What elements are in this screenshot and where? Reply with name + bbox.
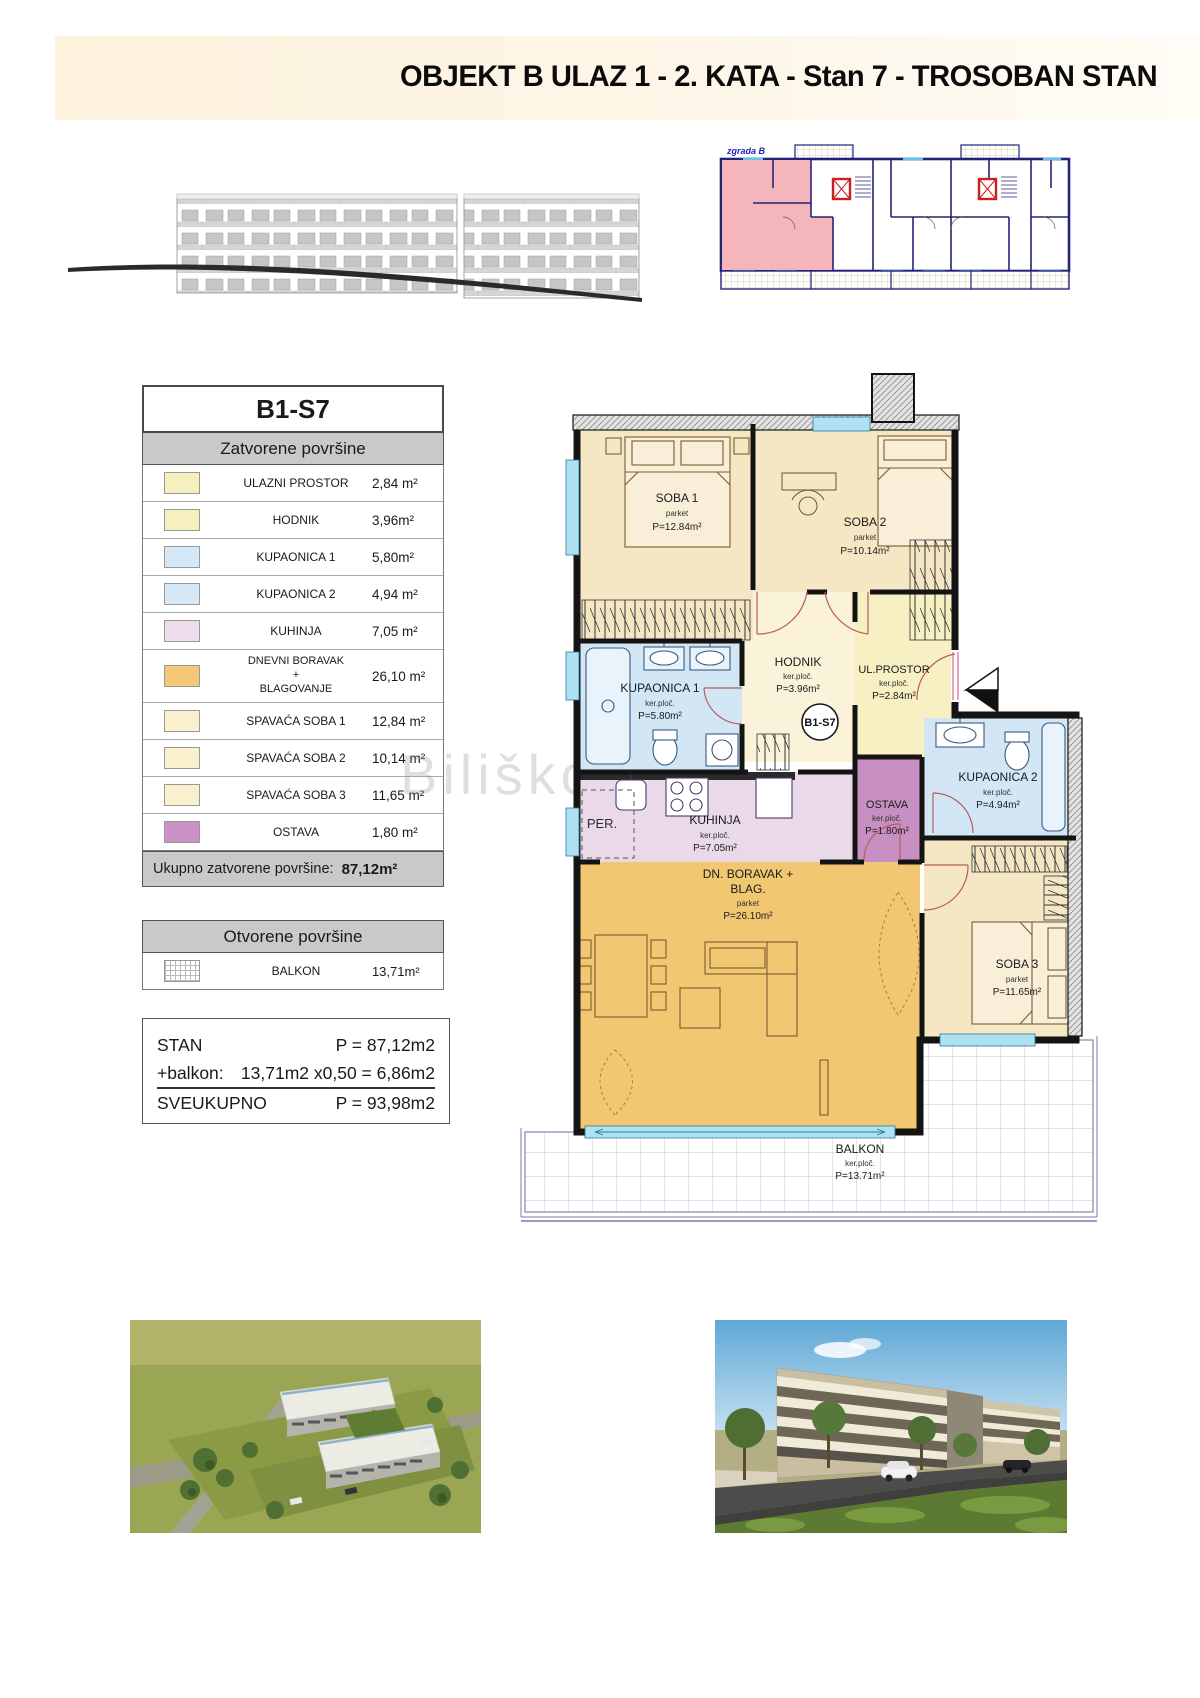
room-area: 5,80m² bbox=[370, 550, 443, 565]
table-row: OSTAVA 1,80 m² bbox=[143, 813, 443, 850]
unit-code-title: B1-S7 bbox=[142, 385, 444, 433]
room-area: 7,05 m² bbox=[370, 624, 443, 639]
room-color-swatch bbox=[164, 784, 200, 806]
label-soba1: SOBA 1 bbox=[656, 491, 699, 505]
wardrobe-soba3-top bbox=[972, 846, 1067, 872]
svg-text:P=10.14m²: P=10.14m² bbox=[840, 546, 890, 557]
room-color-swatch bbox=[164, 665, 200, 687]
table-row: SPAVAĆA SOBA 1 12,84 m² bbox=[143, 702, 443, 739]
label-soba2: SOBA 2 bbox=[844, 515, 887, 529]
room-name: SPAVAĆA SOBA 1 bbox=[222, 714, 370, 729]
room-name: KUPAONICA 2 bbox=[222, 587, 370, 602]
summary-label: +balkon: bbox=[157, 1059, 224, 1087]
building-label: zgrada B bbox=[726, 146, 766, 156]
label-boravak: DN. BORAVAK + bbox=[703, 867, 794, 881]
room-area: 3,96m² bbox=[370, 513, 443, 528]
total-label: Ukupno zatvorene površine: bbox=[143, 861, 334, 877]
room-area: 13,71m² bbox=[370, 964, 443, 979]
room-name: BALKON bbox=[222, 964, 370, 979]
label-kupaonica2: KUPAONICA 2 bbox=[958, 770, 1037, 784]
unit-badge: B1-S7 bbox=[804, 717, 835, 729]
label-soba3: SOBA 3 bbox=[996, 957, 1039, 971]
room-name: KUPAONICA 1 bbox=[222, 550, 370, 565]
svg-text:P=7.05m²: P=7.05m² bbox=[693, 843, 737, 854]
room-color-swatch bbox=[164, 546, 200, 568]
label-ostava: OSTAVA bbox=[866, 799, 909, 811]
render-street-view bbox=[715, 1320, 1067, 1533]
svg-text:P=2.84m²: P=2.84m² bbox=[872, 691, 916, 702]
svg-text:parket: parket bbox=[854, 533, 877, 542]
wardrobe-soba1 bbox=[582, 600, 750, 640]
svg-text:P=4.94m²: P=4.94m² bbox=[976, 800, 1020, 811]
room-name: SPAVAĆA SOBA 3 bbox=[222, 788, 370, 803]
building-elevation-drawing bbox=[64, 158, 642, 306]
room-area: 26,10 m² bbox=[370, 669, 443, 684]
table-row: KUPAONICA 1 5,80m² bbox=[143, 538, 443, 575]
summary-label: STAN bbox=[157, 1031, 202, 1059]
table-row: ULAZNI PROSTOR 2,84 m² bbox=[143, 465, 443, 501]
svg-text:ker.ploč.: ker.ploč. bbox=[700, 831, 730, 840]
room-name: HODNIK bbox=[222, 513, 370, 528]
unit-area-table: B1-S7 Zatvorene površine ULAZNI PROSTOR … bbox=[142, 385, 444, 887]
label-kupaonica1: KUPAONICA 1 bbox=[620, 681, 699, 695]
svg-text:P=13.71m²: P=13.71m² bbox=[835, 1171, 885, 1182]
balcony-strip bbox=[721, 271, 1069, 289]
room-area: 12,84 m² bbox=[370, 714, 443, 729]
table-row: KUHINJA 7,05 m² bbox=[143, 612, 443, 649]
summary-line-total: SVEUKUPNO P = 93,98m2 bbox=[157, 1089, 435, 1117]
area-summary-box: STAN P = 87,12m2 +balkon: 13,71m2 x0,50 … bbox=[142, 1018, 450, 1124]
svg-text:ker.ploč.: ker.ploč. bbox=[645, 699, 675, 708]
label-balkon: BALKON bbox=[836, 1142, 885, 1156]
room-color-swatch bbox=[164, 710, 200, 732]
table-row: BALKON 13,71m² bbox=[143, 953, 443, 989]
vent-shaft bbox=[872, 374, 914, 422]
apartment-floorplan: SOBA 1 parket P=12.84m² SOBA 2 parket P=… bbox=[520, 360, 1100, 1228]
svg-text:P=12.84m²: P=12.84m² bbox=[652, 522, 702, 533]
open-areas-header: Otvorene površine bbox=[142, 920, 444, 953]
header-banner: OBJEKT B ULAZ 1 - 2. KATA - Stan 7 - TRO… bbox=[55, 36, 1200, 120]
room-name: DNEVNI BORAVAK + BLAGOVANJE bbox=[222, 655, 370, 696]
table-row: KUPAONICA 2 4,94 m² bbox=[143, 575, 443, 612]
room-name: OSTAVA bbox=[222, 825, 370, 840]
room-area: 4,94 m² bbox=[370, 587, 443, 602]
svg-text:ker.ploč.: ker.ploč. bbox=[879, 679, 909, 688]
table-row: SPAVAĆA SOBA 3 11,65 m² bbox=[143, 776, 443, 813]
page-title: OBJEKT B ULAZ 1 - 2. KATA - Stan 7 - TRO… bbox=[400, 60, 1157, 94]
room-area: 2,84 m² bbox=[370, 476, 443, 491]
svg-text:ker.ploč.: ker.ploč. bbox=[872, 814, 902, 823]
summary-line-balkon: +balkon: 13,71m2 x0,50 = 6,86m2 bbox=[157, 1059, 435, 1089]
room-name: ULAZNI PROSTOR bbox=[222, 476, 370, 491]
summary-value: P = 93,98m2 bbox=[336, 1089, 435, 1117]
svg-text:P=5.80m²: P=5.80m² bbox=[638, 711, 682, 722]
label-washer: PER. bbox=[587, 816, 617, 831]
svg-text:ker.ploč.: ker.ploč. bbox=[983, 788, 1013, 797]
label-hodnik: HODNIK bbox=[775, 655, 822, 669]
svg-text:ker.ploč.: ker.ploč. bbox=[845, 1159, 875, 1168]
floor-overview-plan: zgrada B bbox=[713, 143, 1078, 305]
hall-closet bbox=[757, 734, 789, 770]
label-ulprostor: UL.PROSTOR bbox=[858, 664, 929, 676]
room-color-swatch bbox=[164, 821, 200, 843]
svg-text:parket: parket bbox=[1006, 975, 1029, 984]
room-name: SPAVAĆA SOBA 2 bbox=[222, 751, 370, 766]
summary-value: 13,71m2 x0,50 = 6,86m2 bbox=[241, 1059, 435, 1087]
summary-line-stan: STAN P = 87,12m2 bbox=[157, 1031, 435, 1059]
wardrobe-soba3-side bbox=[1044, 876, 1068, 920]
summary-label: SVEUKUPNO bbox=[157, 1089, 267, 1117]
table-row: SPAVAĆA SOBA 2 10,14 m² bbox=[143, 739, 443, 776]
room-color-swatch bbox=[164, 583, 200, 605]
total-value: 87,12m² bbox=[334, 861, 398, 878]
svg-text:P=3.96m²: P=3.96m² bbox=[776, 684, 820, 695]
table-row: DNEVNI BORAVAK + BLAGOVANJE 26,10 m² bbox=[143, 649, 443, 702]
svg-text:parket: parket bbox=[666, 509, 689, 518]
summary-value: P = 87,12m2 bbox=[336, 1031, 435, 1059]
svg-text:parket: parket bbox=[737, 899, 760, 908]
closed-areas-total: Ukupno zatvorene površine: 87,12m² bbox=[142, 851, 444, 887]
svg-text:P=1.80m²: P=1.80m² bbox=[865, 826, 909, 837]
room-color-swatch bbox=[164, 747, 200, 769]
svg-text:P=26.10m²: P=26.10m² bbox=[723, 911, 773, 922]
page: OBJEKT B ULAZ 1 - 2. KATA - Stan 7 - TRO… bbox=[0, 0, 1200, 1698]
svg-text:P=11.65m²: P=11.65m² bbox=[993, 987, 1042, 998]
room-name: KUHINJA bbox=[222, 624, 370, 639]
table-row: HODNIK 3,96m² bbox=[143, 501, 443, 538]
open-areas-table: Otvorene površine BALKON 13,71m² bbox=[142, 920, 444, 990]
balcony-grid-swatch bbox=[164, 960, 200, 982]
svg-text:BLAG.: BLAG. bbox=[730, 882, 765, 896]
label-kuhinja: KUHINJA bbox=[689, 813, 740, 827]
room-color-swatch bbox=[164, 509, 200, 531]
room-color-swatch bbox=[164, 620, 200, 642]
room-color-swatch bbox=[164, 472, 200, 494]
room-area: 1,80 m² bbox=[370, 825, 443, 840]
render-aerial-view bbox=[130, 1320, 481, 1533]
entrance-arrow-icon bbox=[966, 668, 998, 712]
svg-text:ker.ploč.: ker.ploč. bbox=[783, 672, 813, 681]
closed-areas-header: Zatvorene površine bbox=[142, 433, 444, 465]
